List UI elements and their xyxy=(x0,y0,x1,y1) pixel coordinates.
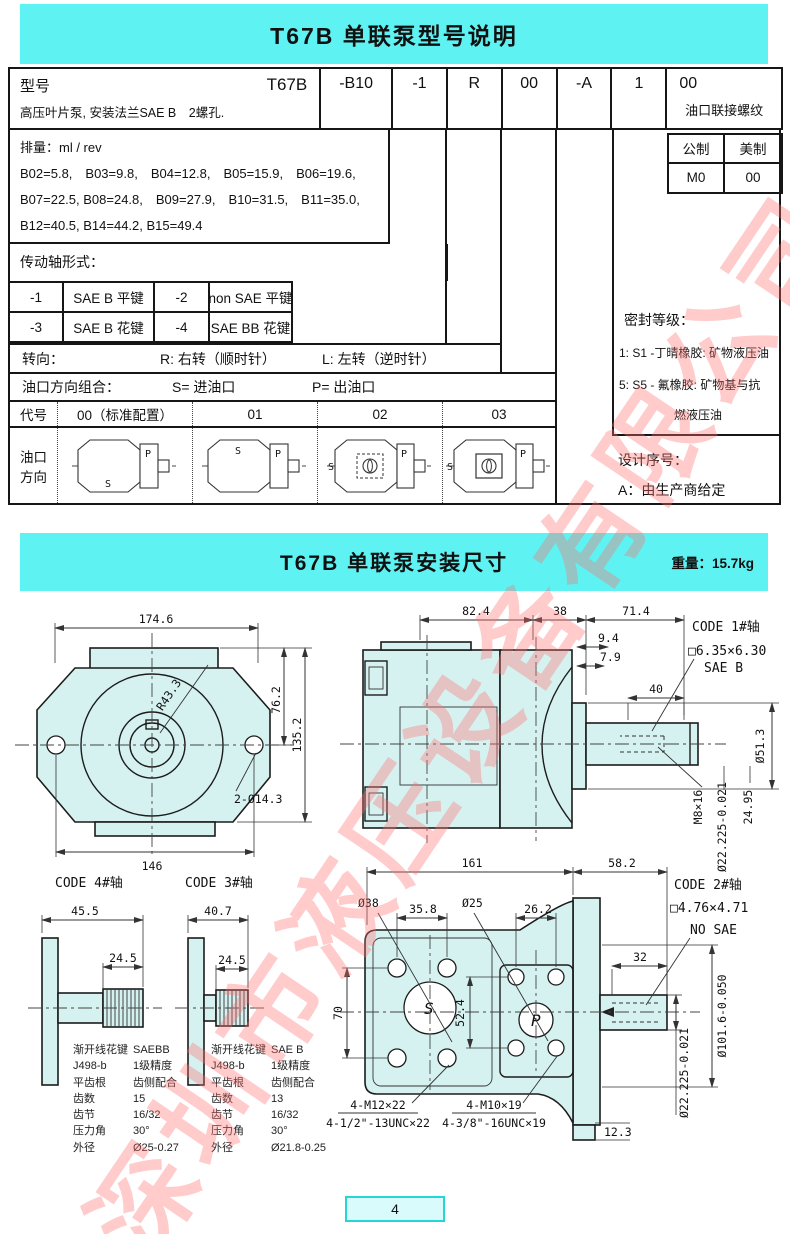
svg-text:S: S xyxy=(235,446,241,457)
pump-schematic-00: P S xyxy=(72,430,178,502)
dim-bot-d38: Ø38 xyxy=(358,896,379,910)
dim-front-76: 76.2 xyxy=(269,686,283,714)
code-cell-portdir: 00 xyxy=(503,69,558,128)
shaft-desc: SAE B 花键 xyxy=(64,313,155,341)
design-serial-title: 设计序号： xyxy=(618,450,688,470)
code3-title: CODE 3#轴 xyxy=(185,876,253,891)
shaft-code: -2 xyxy=(155,283,210,313)
seal-class-box: 密封等级： 1: S1 -丁晴橡胶: 矿物液压油 5: S5 - 氟橡胶: 矿物… xyxy=(612,130,781,436)
dim-bot-161: 161 xyxy=(462,856,483,870)
dim-bot-unc12: 4-1/2"-13UNC×22 xyxy=(326,1116,430,1130)
shaft-desc: SAE BB 花键 xyxy=(210,313,291,341)
dim-bot-d22: Ø22.225-0.021 xyxy=(677,1028,691,1118)
code-02: 02 xyxy=(317,402,442,426)
dim-nosae: NO SAE xyxy=(690,923,737,938)
port-diagram-03: S P xyxy=(442,428,555,503)
spline-spec-code4: 渐开线花键SAEBB J498-b1级精度 平齿根齿侧配合 齿数15 齿节16/… xyxy=(73,1042,179,1156)
table-divider xyxy=(445,130,447,343)
port-diagram-00: P S xyxy=(57,428,192,503)
section1-title-bar: T67B 单联泵型号说明 xyxy=(20,4,768,64)
code-number-row: 代号 00（标准配置） 01 02 03 xyxy=(8,400,557,426)
dim-bot-unc10: 4-3/8"-16UNC×19 xyxy=(442,1116,546,1130)
pump-schematic-01: S P xyxy=(202,430,308,502)
dim-bot-262: 26.2 xyxy=(524,902,552,916)
dim-side-824: 82.4 xyxy=(462,604,490,618)
dim-bot-70: 70 xyxy=(331,1006,345,1020)
dim-bot-32: 32 xyxy=(633,950,647,964)
dim-bot-123: 12.3 xyxy=(604,1125,632,1139)
dim-side-38: 38 xyxy=(553,604,567,618)
rotation-left: L: 左转（逆时针） xyxy=(322,345,436,372)
dim-side-94: 9.4 xyxy=(598,631,619,645)
displacement-line: 排量：ml / rev xyxy=(20,135,388,161)
dim-bot-582: 58.2 xyxy=(608,856,636,870)
rotation-right: R: 右转（顺时针） xyxy=(160,345,276,372)
dim-side-40: 40 xyxy=(649,682,663,696)
page-number-box: 4 xyxy=(345,1196,445,1222)
dim-front-holes: 2-Ø14.3 xyxy=(234,792,283,806)
front-view: 174.6 76.2 135.2 146 2-Ø14.3 R43.3 xyxy=(15,612,312,873)
svg-text:S: S xyxy=(105,479,111,490)
rotation-label: 转向： xyxy=(22,345,64,372)
dim-side-d513: Ø51.3 xyxy=(753,729,767,764)
dim-code1: CODE 1#轴 xyxy=(692,620,760,635)
displacement-line: B12=40.5, B14=44.2, B15=49.4 xyxy=(20,213,388,239)
svg-text:P: P xyxy=(401,449,407,460)
table-bottom-border xyxy=(555,503,781,505)
dim-c4-245: 24.5 xyxy=(109,951,137,965)
dim-c3-407: 40.7 xyxy=(204,904,232,918)
model-value: T67B xyxy=(267,75,312,96)
shaft-code: -4 xyxy=(155,313,210,341)
dim-bot-m10: 4-M10×19 xyxy=(466,1098,521,1112)
table-right-border xyxy=(779,436,781,505)
code-cell-rotation: R xyxy=(448,69,503,128)
dim-bot-d101: Ø101.6-0.050 xyxy=(715,974,729,1057)
shaft-type-label: 传动轴形式： xyxy=(8,244,448,281)
page-number: 4 xyxy=(391,1201,399,1217)
design-serial-value: A：由生产商给定 xyxy=(618,480,725,500)
shaft-code: -1 xyxy=(10,283,64,313)
code-cell-shaft: -1 xyxy=(393,69,448,128)
port-dir-label: 油口 方向 xyxy=(10,428,57,503)
svg-text:P: P xyxy=(520,449,526,460)
thread-code: 00 xyxy=(667,75,781,93)
port-diagram-02: S P xyxy=(317,428,442,503)
displacement-line: B07=22.5, B08=24.8, B09=27.9, B10=31.5, … xyxy=(20,187,388,213)
dim-side-m8: M8×16 xyxy=(691,790,705,825)
dim-bot-358: 35.8 xyxy=(409,902,437,916)
port-combo-label: 油口方向组合： xyxy=(22,374,120,400)
dim-saeb: SAE B xyxy=(704,661,743,676)
seal-line3: 燃液压油 xyxy=(674,406,722,423)
thread-label: 油口联接螺纹 xyxy=(667,100,781,119)
dim-front-135: 135.2 xyxy=(290,718,304,753)
port-s: S= 进油口 xyxy=(172,374,235,400)
dim-side-79: 7.9 xyxy=(600,650,621,664)
dim-side-2495: 24.95 xyxy=(741,790,755,825)
port-combo-row: 油口方向组合： S= 进油口 P= 出油口 xyxy=(8,372,557,400)
section1-title: T67B 单联泵型号说明 xyxy=(270,17,518,51)
code-cell-seal: 1 xyxy=(612,69,667,128)
code4-title: CODE 4#轴 xyxy=(55,876,123,891)
side-view: 82.4 38 71.4 9.4 7.9 CODE 1#轴 □6.35×6.30… xyxy=(340,604,779,872)
model-code-header: 型号 T67B 高压叶片泵, 安装法兰SAE B 2螺孔. -B10 -1 R … xyxy=(8,67,783,130)
dim-side-d22: Ø22.225-0.021 xyxy=(715,782,729,872)
rotation-row: 转向： R: 右转（顺时针） L: 左转（逆时针） xyxy=(8,343,502,372)
svg-text:S: S xyxy=(328,462,334,473)
code-00: 00（标准配置） xyxy=(57,402,192,426)
dim-front-146: 146 xyxy=(142,859,163,873)
model-label: 型号 xyxy=(20,75,50,96)
code-01: 01 xyxy=(192,402,317,426)
dim-front-width: 174.6 xyxy=(139,612,174,626)
port-direction-row: 油口 方向 P S S P xyxy=(8,426,557,505)
displacement-line: B02=5.8, B03=9.8, B04=12.8, B05=15.9, B0… xyxy=(20,161,388,187)
dim-c4-455: 45.5 xyxy=(71,904,99,918)
pump-schematic-03: S P xyxy=(446,430,552,502)
shaft-desc: SAE B 平键 xyxy=(64,283,155,313)
dim-bot-m12: 4-M12×22 xyxy=(350,1098,405,1112)
port-p: P= 出油口 xyxy=(312,374,375,400)
dim-key2: □4.76×4.71 xyxy=(670,901,748,916)
model-cell: 型号 T67B 高压叶片泵, 安装法兰SAE B 2螺孔. xyxy=(10,69,321,128)
dim-side-714: 71.4 xyxy=(622,604,650,618)
svg-text:S: S xyxy=(447,462,453,473)
code-03: 03 xyxy=(442,402,555,426)
code-cell-b10: -B10 xyxy=(321,69,393,128)
dim-bot-524: 52.4 xyxy=(453,999,467,1027)
table-divider xyxy=(555,130,557,372)
spline-spec-code3: 渐开线花键SAE B J498-b1级精度 平齿根齿侧配合 齿数13 齿节16/… xyxy=(211,1042,326,1156)
weight-label: 重量：15.7kg xyxy=(671,533,754,591)
datasheet-page: T67B 单联泵型号说明 型号 T67B 高压叶片泵, 安装法兰SAE B 2螺… xyxy=(0,0,790,1234)
seal-line1: 1: S1 -丁晴橡胶: 矿物液压油 xyxy=(619,344,769,361)
port-diagram-01: S P xyxy=(192,428,317,503)
seal-title: 密封等级： xyxy=(624,310,694,330)
pump-desc: 高压叶片泵, 安装法兰SAE B 2螺孔. xyxy=(20,102,311,121)
dim-c3-245: 24.5 xyxy=(218,953,246,967)
code-cell-design: -A xyxy=(558,69,613,128)
bottom-view: S P 161 58.2 Ø38 35.8 Ø25 xyxy=(326,856,748,1140)
shaft-desc: non SAE 平键 xyxy=(210,283,291,313)
dim-bot-d25: Ø25 xyxy=(462,896,483,910)
displacement-box: 排量：ml / rev B02=5.8, B03=9.8, B04=12.8, … xyxy=(8,130,390,244)
shaft-code: -3 xyxy=(10,313,64,341)
section2-title: T67B 单联泵安装尺寸 xyxy=(20,533,768,591)
code-row-label: 代号 xyxy=(10,402,57,426)
code-cell-thread: 00 油口联接螺纹 xyxy=(667,69,781,128)
shaft-type-table: -1 SAE B 平键 -2 non SAE 平键 -3 SAE B 花键 -4… xyxy=(8,281,293,343)
seal-line2: 5: S5 - 氟橡胶: 矿物基与抗 xyxy=(619,376,760,393)
section2-title-bar: T67B 单联泵安装尺寸 重量：15.7kg xyxy=(20,533,768,591)
dim-code2: CODE 2#轴 xyxy=(674,878,742,893)
table-divider xyxy=(500,130,502,343)
svg-text:P: P xyxy=(145,449,151,460)
dim-key1: □6.35×6.30 xyxy=(688,644,766,659)
pump-schematic-02: S P xyxy=(327,430,433,502)
svg-text:P: P xyxy=(275,449,281,460)
